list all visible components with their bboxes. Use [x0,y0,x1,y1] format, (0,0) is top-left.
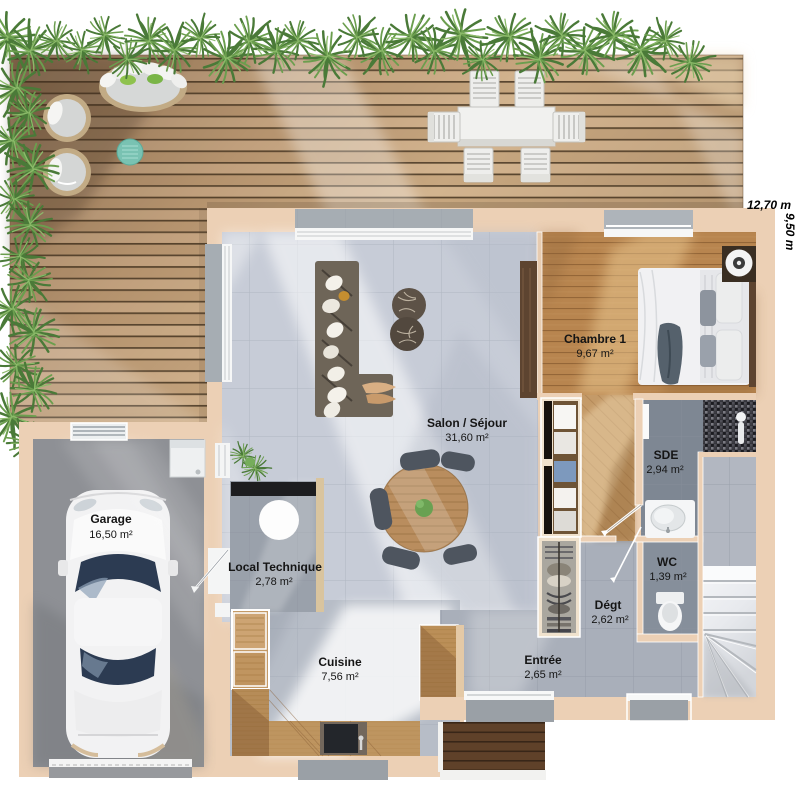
svg-text:Chambre 1: Chambre 1 [564,332,626,346]
svg-text:9,50 m: 9,50 m [783,213,797,251]
svg-text:Entrée: Entrée [524,653,562,667]
svg-text:9,67 m²: 9,67 m² [576,348,614,360]
svg-text:Garage: Garage [90,512,132,526]
svg-text:Salon / Séjour: Salon / Séjour [427,416,507,430]
svg-text:Local Technique: Local Technique [228,560,322,574]
svg-text:31,60 m²: 31,60 m² [445,432,489,444]
svg-text:1,39 m²: 1,39 m² [649,571,687,583]
svg-text:16,50 m²: 16,50 m² [89,529,133,541]
svg-text:Dégt: Dégt [595,598,622,612]
svg-text:SDE: SDE [654,448,679,462]
svg-text:2,65 m²: 2,65 m² [524,669,562,681]
svg-text:7,56 m²: 7,56 m² [321,671,359,683]
svg-text:2,78 m²: 2,78 m² [255,576,293,588]
svg-text:2,62 m²: 2,62 m² [591,614,629,626]
svg-text:Cuisine: Cuisine [318,655,362,669]
svg-text:12,70 m: 12,70 m [747,198,791,212]
svg-text:WC: WC [657,555,677,569]
svg-text:2,94 m²: 2,94 m² [646,464,684,476]
